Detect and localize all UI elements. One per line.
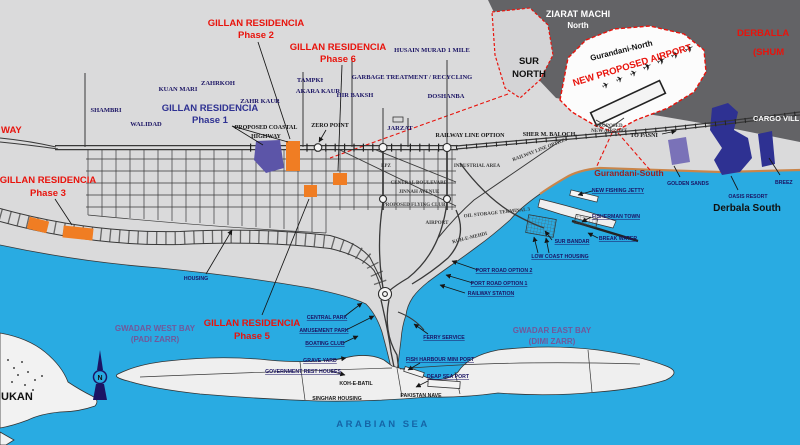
phase6-block-orange (333, 173, 347, 185)
gwadar-master-plan-map: ✈ ✈ ✈ ✈ ✈ ✈ ✈ (0, 0, 800, 445)
map-canvas: ✈ ✈ ✈ ✈ ✈ ✈ ✈ (0, 0, 800, 445)
zero-point-roundabout (314, 144, 322, 152)
phase2-block-orange (286, 141, 300, 171)
phase5-block-orange (304, 185, 317, 197)
